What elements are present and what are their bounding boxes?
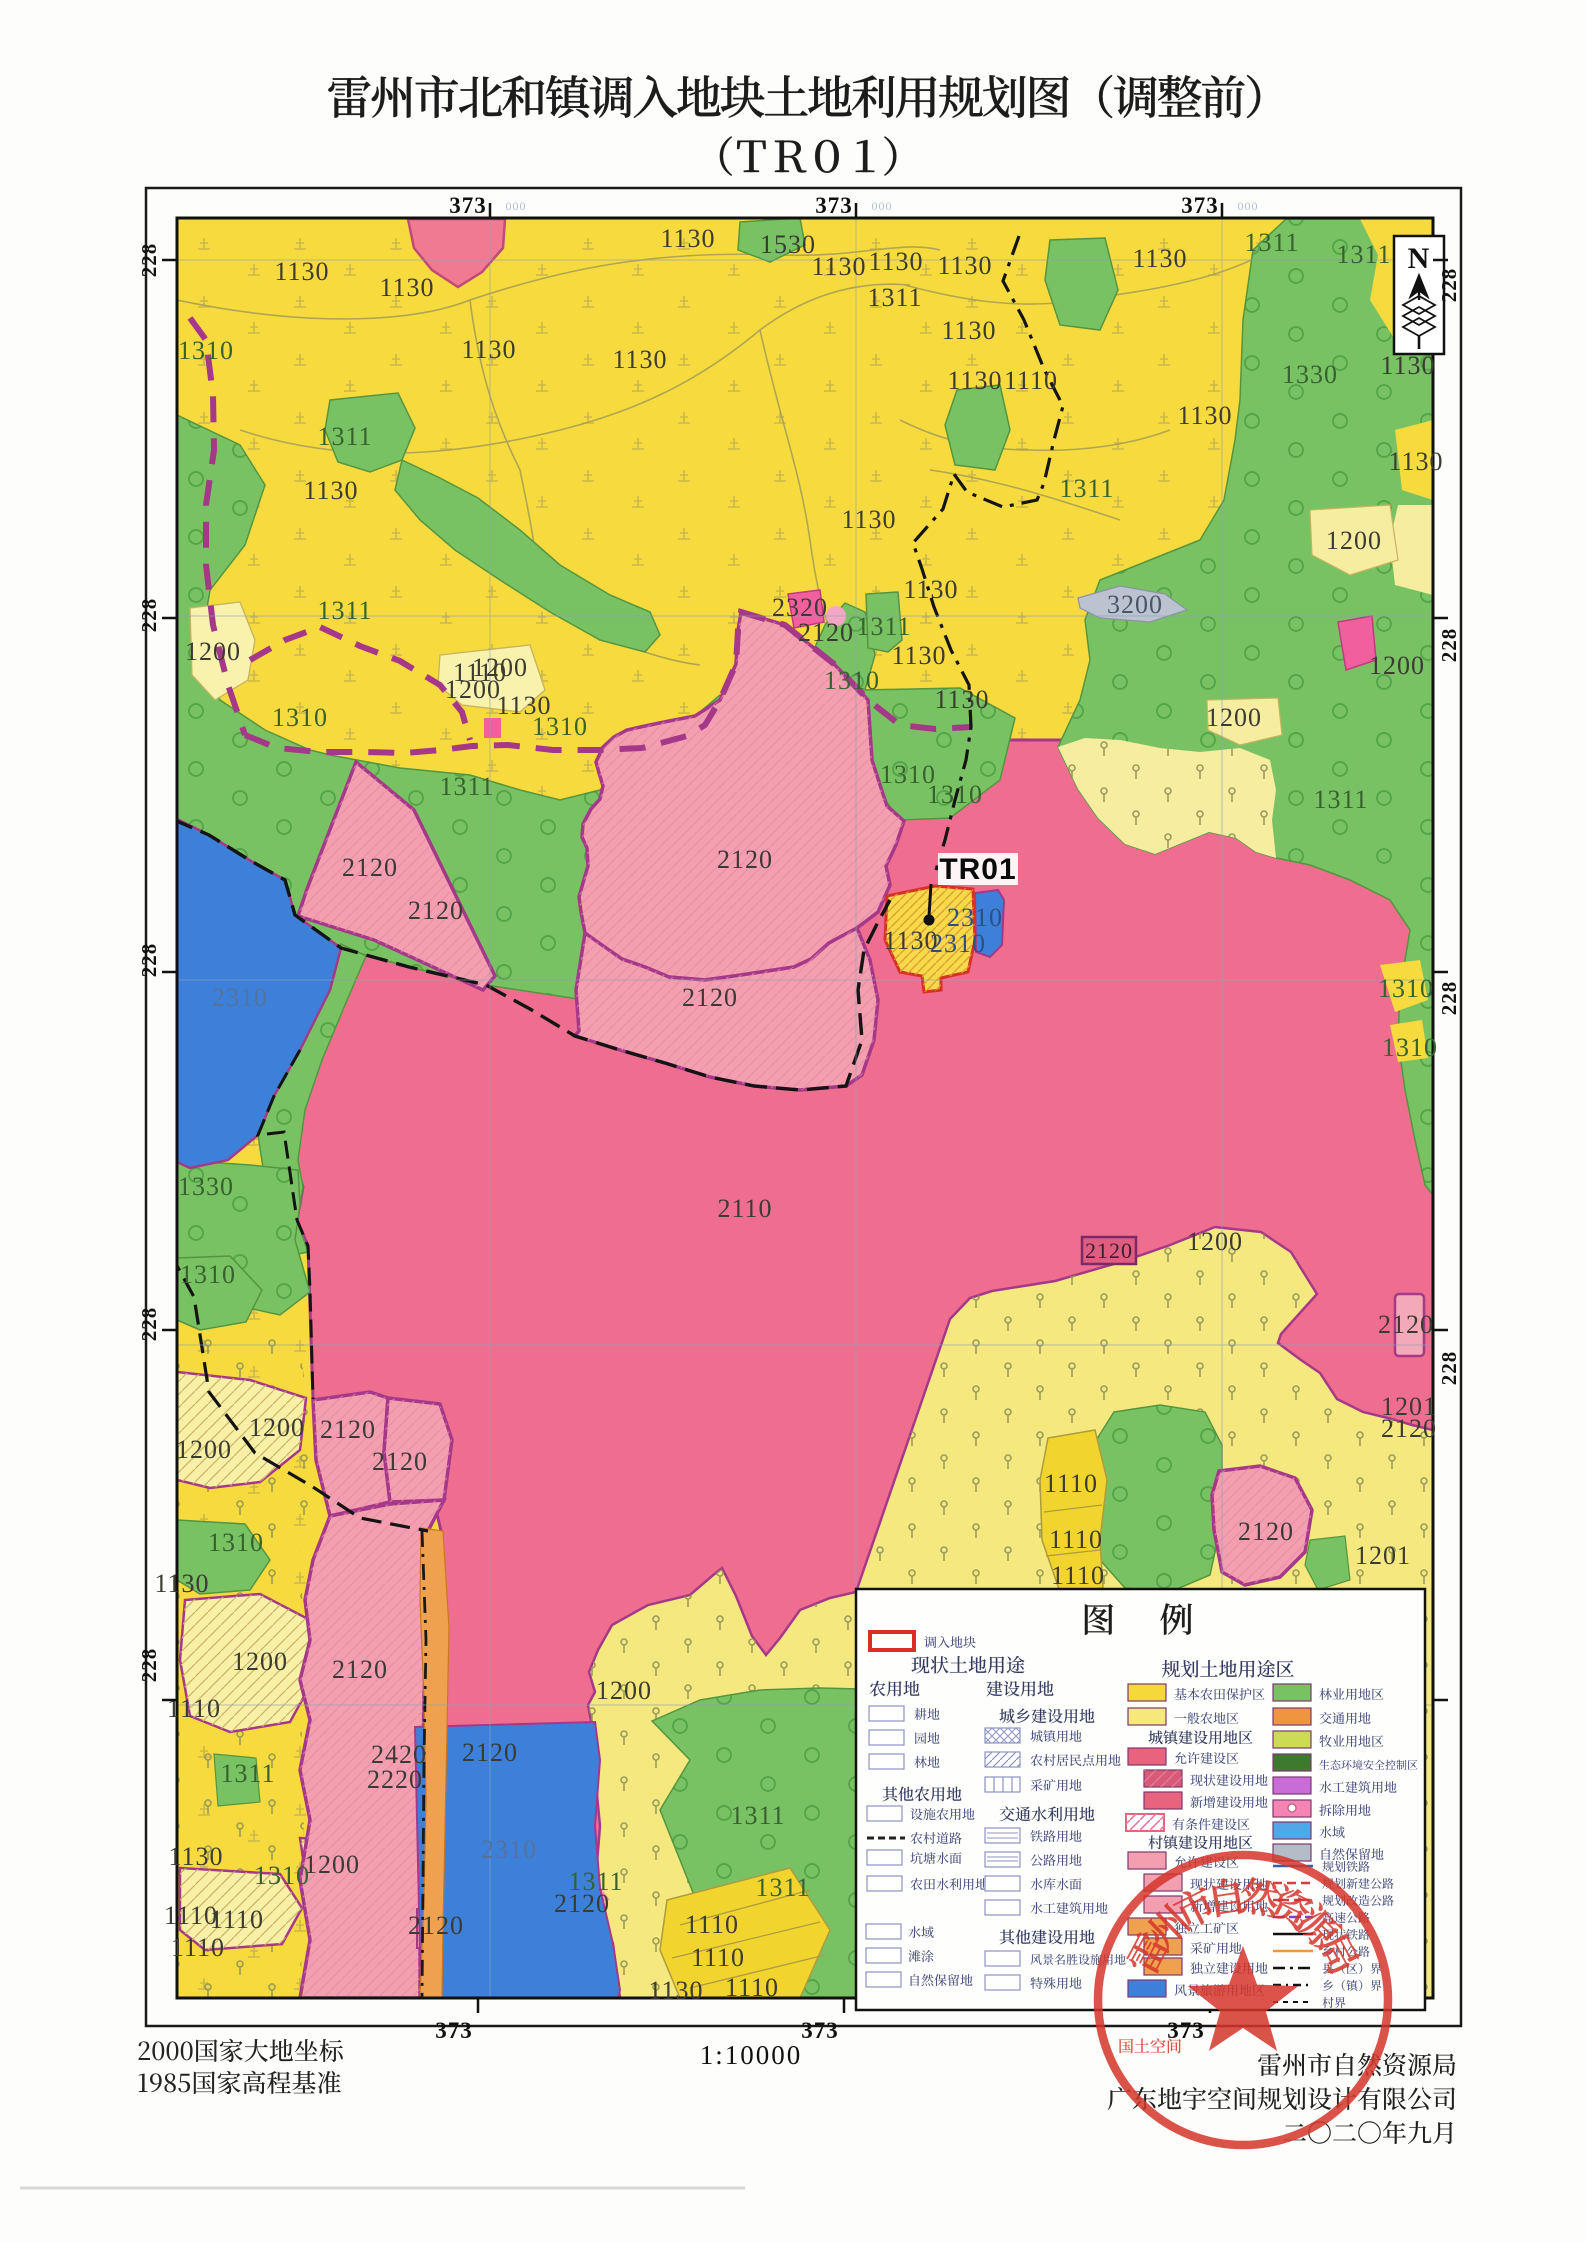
svg-text:1310: 1310 (824, 666, 880, 695)
svg-text:373: 373 (1181, 193, 1219, 218)
svg-text:228: 228 (1437, 981, 1461, 1016)
svg-text:2310: 2310 (947, 903, 1003, 932)
svg-text:1311: 1311 (220, 1759, 275, 1788)
svg-text:2120: 2120 (1085, 1238, 1133, 1263)
svg-text:2120: 2120 (682, 983, 738, 1012)
svg-text:1310: 1310 (1378, 974, 1434, 1003)
svg-text:1200: 1200 (185, 637, 241, 666)
svg-text:1311: 1311 (1336, 240, 1391, 269)
svg-text:2310: 2310 (481, 1835, 537, 1864)
svg-text:1130: 1130 (461, 335, 516, 364)
svg-text:000: 000 (872, 199, 893, 213)
svg-text:2120: 2120 (717, 845, 773, 874)
svg-text:228: 228 (137, 243, 161, 278)
svg-text:1310: 1310 (1382, 1033, 1438, 1062)
svg-text:2120: 2120 (554, 1889, 610, 1918)
svg-text:1310: 1310 (180, 1260, 236, 1289)
svg-text:1310: 1310 (178, 336, 234, 365)
svg-text:228: 228 (1437, 1351, 1461, 1386)
svg-text:2310: 2310 (212, 983, 268, 1012)
svg-text:373: 373 (815, 193, 853, 218)
svg-text:1310: 1310 (272, 703, 328, 732)
svg-text:1311: 1311 (867, 283, 922, 312)
svg-text:1311: 1311 (1059, 474, 1114, 503)
svg-text:1130: 1130 (937, 251, 992, 280)
svg-text:1311: 1311 (755, 1873, 810, 1902)
svg-text:373: 373 (1167, 2018, 1205, 2043)
svg-text:1200: 1200 (445, 675, 501, 704)
svg-text:1130: 1130 (868, 247, 923, 276)
svg-text:1130: 1130 (612, 345, 667, 374)
svg-text:1311: 1311 (1313, 785, 1368, 814)
svg-text:1311: 1311 (317, 596, 372, 625)
svg-text:1110: 1110 (210, 1905, 264, 1934)
svg-text:1310: 1310 (532, 712, 588, 741)
svg-text:1200: 1200 (232, 1647, 288, 1676)
svg-text:1130: 1130 (934, 685, 989, 714)
svg-text:1130: 1130 (1132, 244, 1187, 273)
svg-text:000: 000 (506, 199, 527, 213)
svg-text:000: 000 (1238, 199, 1259, 213)
svg-text:228: 228 (1437, 628, 1461, 663)
svg-text:1130: 1130 (947, 366, 1002, 395)
svg-text:1110: 1110 (1049, 1525, 1103, 1554)
svg-text:1130: 1130 (154, 1569, 209, 1598)
svg-text:1:10000: 1:10000 (700, 2040, 803, 2070)
svg-text:228: 228 (137, 1307, 161, 1342)
svg-text:TR01: TR01 (939, 853, 1016, 886)
svg-text:1310: 1310 (254, 1861, 310, 1890)
svg-text:1130: 1130 (660, 224, 715, 253)
svg-text:1130: 1130 (274, 257, 329, 286)
svg-text:2120: 2120 (462, 1738, 518, 1767)
svg-text:1330: 1330 (1282, 360, 1338, 389)
svg-text:2120: 2120 (798, 618, 854, 647)
svg-text:1130: 1130 (1380, 351, 1435, 380)
svg-text:1130: 1130 (841, 505, 896, 534)
svg-text:2220: 2220 (367, 1765, 423, 1794)
svg-text:2120: 2120 (1381, 1414, 1437, 1443)
svg-text:2120: 2120 (1238, 1517, 1294, 1546)
svg-text:1311: 1311 (439, 772, 494, 801)
svg-text:1110: 1110 (171, 1933, 225, 1962)
svg-text:2120: 2120 (342, 853, 398, 882)
svg-text:373: 373 (801, 2018, 839, 2043)
svg-text:228: 228 (1437, 268, 1461, 303)
svg-text:1130: 1130 (648, 1976, 703, 2005)
svg-text:228: 228 (137, 943, 161, 978)
svg-text:1201: 1201 (1355, 1541, 1411, 1570)
svg-text:2310: 2310 (930, 929, 986, 958)
svg-text:228: 228 (137, 1648, 161, 1683)
svg-text:2120: 2120 (320, 1415, 376, 1444)
svg-text:3200: 3200 (1107, 590, 1163, 619)
svg-text:1110: 1110 (1004, 366, 1058, 395)
svg-text:1200: 1200 (304, 1850, 360, 1879)
svg-text:1311: 1311 (730, 1801, 785, 1830)
svg-text:1200: 1200 (1206, 703, 1262, 732)
svg-text:1130: 1130 (941, 316, 996, 345)
svg-text:228: 228 (137, 598, 161, 633)
svg-text:1110: 1110 (1051, 1561, 1105, 1590)
svg-text:2120: 2120 (1378, 1310, 1434, 1339)
svg-text:1130: 1130 (379, 273, 434, 302)
svg-text:1311: 1311 (1244, 228, 1299, 257)
svg-text:2110: 2110 (717, 1194, 772, 1223)
svg-text:1530: 1530 (760, 230, 816, 259)
svg-text:1130: 1130 (891, 641, 946, 670)
svg-text:1110: 1110 (685, 1910, 739, 1939)
svg-text:1200: 1200 (176, 1435, 232, 1464)
svg-text:1200: 1200 (1326, 526, 1382, 555)
svg-text:1200: 1200 (249, 1413, 305, 1442)
svg-text:1311: 1311 (317, 422, 372, 451)
svg-text:1130: 1130 (1177, 401, 1232, 430)
svg-text:1311: 1311 (856, 612, 911, 641)
svg-text:1330: 1330 (178, 1172, 234, 1201)
svg-text:1130: 1130 (303, 476, 358, 505)
svg-text:2120: 2120 (408, 1911, 464, 1940)
svg-text:373: 373 (449, 193, 487, 218)
svg-text:1130: 1130 (168, 1842, 223, 1871)
svg-text:373: 373 (435, 2018, 473, 2043)
svg-text:2120: 2120 (332, 1655, 388, 1684)
svg-text:1110: 1110 (167, 1694, 221, 1723)
svg-text:1130: 1130 (903, 575, 958, 604)
svg-text:1130: 1130 (1388, 447, 1443, 476)
svg-text:1130: 1130 (811, 252, 866, 281)
svg-text:N: N (1408, 242, 1431, 275)
svg-text:1200: 1200 (1369, 651, 1425, 680)
svg-text:1110: 1110 (691, 1943, 745, 1972)
svg-text:2120: 2120 (408, 896, 464, 925)
svg-text:1310: 1310 (208, 1528, 264, 1557)
svg-text:1110: 1110 (1044, 1469, 1098, 1498)
svg-text:2120: 2120 (372, 1447, 428, 1476)
svg-text:1200: 1200 (1187, 1227, 1243, 1256)
svg-text:1310: 1310 (927, 780, 983, 809)
svg-text:1200: 1200 (596, 1676, 652, 1705)
svg-text:1110: 1110 (725, 1973, 779, 2002)
